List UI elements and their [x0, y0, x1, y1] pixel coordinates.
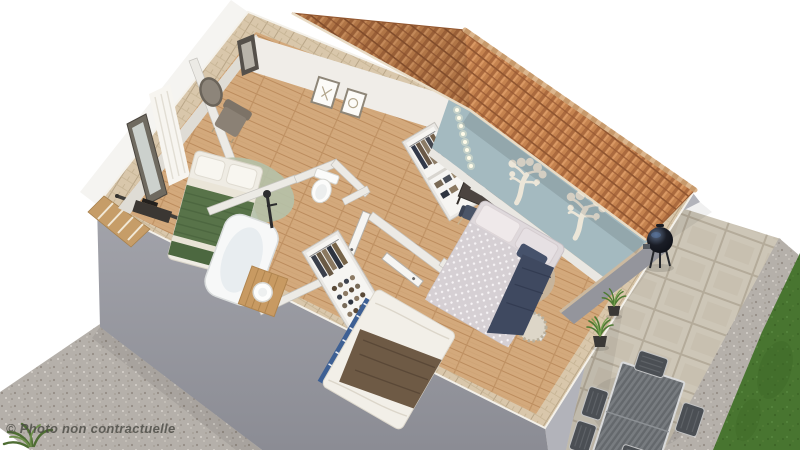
scene-canvas [0, 0, 800, 450]
watermark: © Photo non contractuelle [6, 421, 175, 436]
floorplan-render: © Photo non contractuelle [0, 0, 800, 450]
